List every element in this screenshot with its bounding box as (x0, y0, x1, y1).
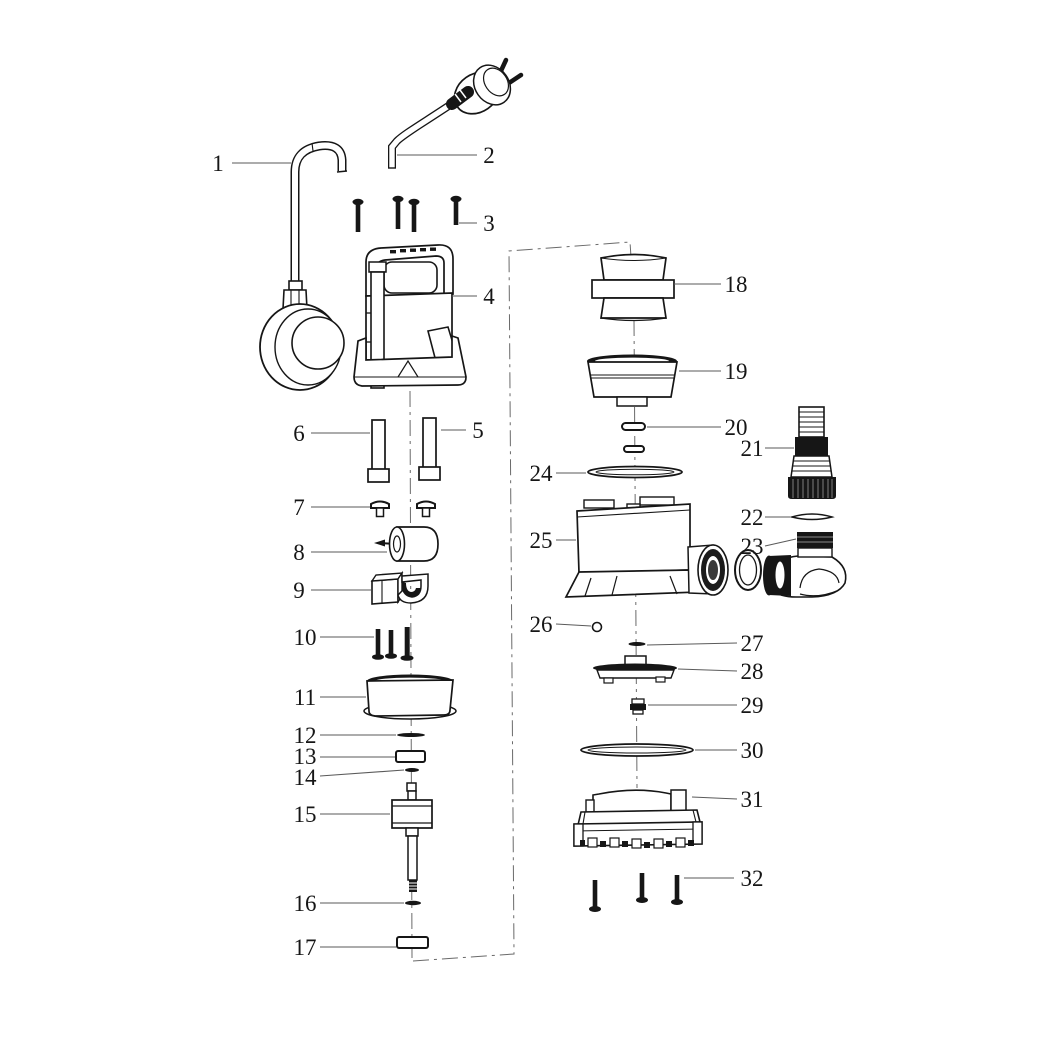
part-2-power-cord-plug (388, 58, 521, 168)
part-label-21: 21 (741, 436, 764, 461)
part-28-impeller (593, 656, 677, 683)
part-29-nut (630, 699, 646, 714)
part-label-3: 3 (483, 211, 495, 236)
part-15-rotor-shaft (392, 783, 432, 892)
part-12-washer (397, 733, 425, 737)
part-label-8: 8 (293, 540, 305, 565)
part-label-9: 9 (293, 578, 305, 603)
part-16-washer (405, 901, 421, 905)
part-label-1: 1 (212, 151, 224, 176)
part-label-4: 4 (483, 284, 495, 309)
leader-27 (647, 643, 737, 645)
leader-31 (692, 797, 737, 799)
part-label-7: 7 (293, 495, 305, 520)
part-label-10: 10 (294, 625, 317, 650)
part-8-capacitor (374, 527, 438, 561)
leader-26 (556, 624, 591, 626)
part-label-18: 18 (725, 272, 748, 297)
part-label-27: 27 (741, 631, 764, 656)
part-22-flat-seal (792, 514, 832, 520)
part-13-bearing (396, 751, 425, 762)
part-label-11: 11 (294, 685, 316, 710)
part-label-16: 16 (294, 891, 317, 916)
part-label-15: 15 (294, 802, 317, 827)
part-label-28: 28 (741, 659, 764, 684)
part-25-pump-body (566, 497, 728, 597)
part-20-washers (622, 423, 645, 452)
part-9-capacitor-clamp (372, 573, 428, 604)
part-label-32: 32 (741, 866, 764, 891)
part-1-float-switch (260, 143, 347, 390)
part-label-14: 14 (294, 765, 318, 790)
part-label-17: 17 (294, 935, 317, 960)
part-label-26: 26 (530, 612, 553, 637)
part-31-base-strainer (574, 790, 702, 848)
leader-28 (678, 669, 737, 671)
part-label-19: 19 (725, 359, 748, 384)
part-label-22: 22 (741, 505, 764, 530)
exploded-parts-diagram: 1 2 3 4 5 6 7 8 9 10 11 12 13 14 15 16 1… (0, 0, 1056, 1056)
part-14-washer (405, 768, 419, 772)
leader-23 (765, 539, 796, 546)
part-label-23: 23 (741, 534, 764, 559)
part-10-screws (372, 627, 414, 661)
part-label-29: 29 (741, 693, 764, 718)
part-5-bolt (419, 418, 440, 480)
part-4-upper-housing (354, 245, 466, 388)
part-26-ball (593, 623, 602, 632)
part-6-bolt (368, 420, 389, 482)
part-label-5: 5 (472, 418, 484, 443)
part-label-25: 25 (530, 528, 553, 553)
part-17-bearing (397, 937, 428, 948)
part-3-screws (353, 196, 462, 232)
exploded-parts-diagram-page: 1 2 3 4 5 6 7 8 9 10 11 12 13 14 15 16 1… (0, 0, 1056, 1056)
part-21-hose-adapter (788, 407, 836, 499)
part-32-screws (589, 873, 683, 912)
part-19-bearing-cup (587, 355, 677, 407)
part-30-gasket-ring (581, 744, 693, 756)
part-label-24: 24 (530, 461, 554, 486)
part-label-31: 31 (741, 787, 764, 812)
part-24-gasket-ring (588, 467, 682, 478)
part-label-2: 2 (483, 143, 495, 168)
part-label-30: 30 (741, 738, 764, 763)
part-label-6: 6 (293, 421, 305, 446)
part-18-stator (592, 255, 674, 321)
leader-14 (320, 770, 404, 776)
part-27-pin (629, 642, 646, 646)
part-11-motor-housing (364, 675, 456, 720)
part-7-cap-plugs (371, 502, 435, 517)
